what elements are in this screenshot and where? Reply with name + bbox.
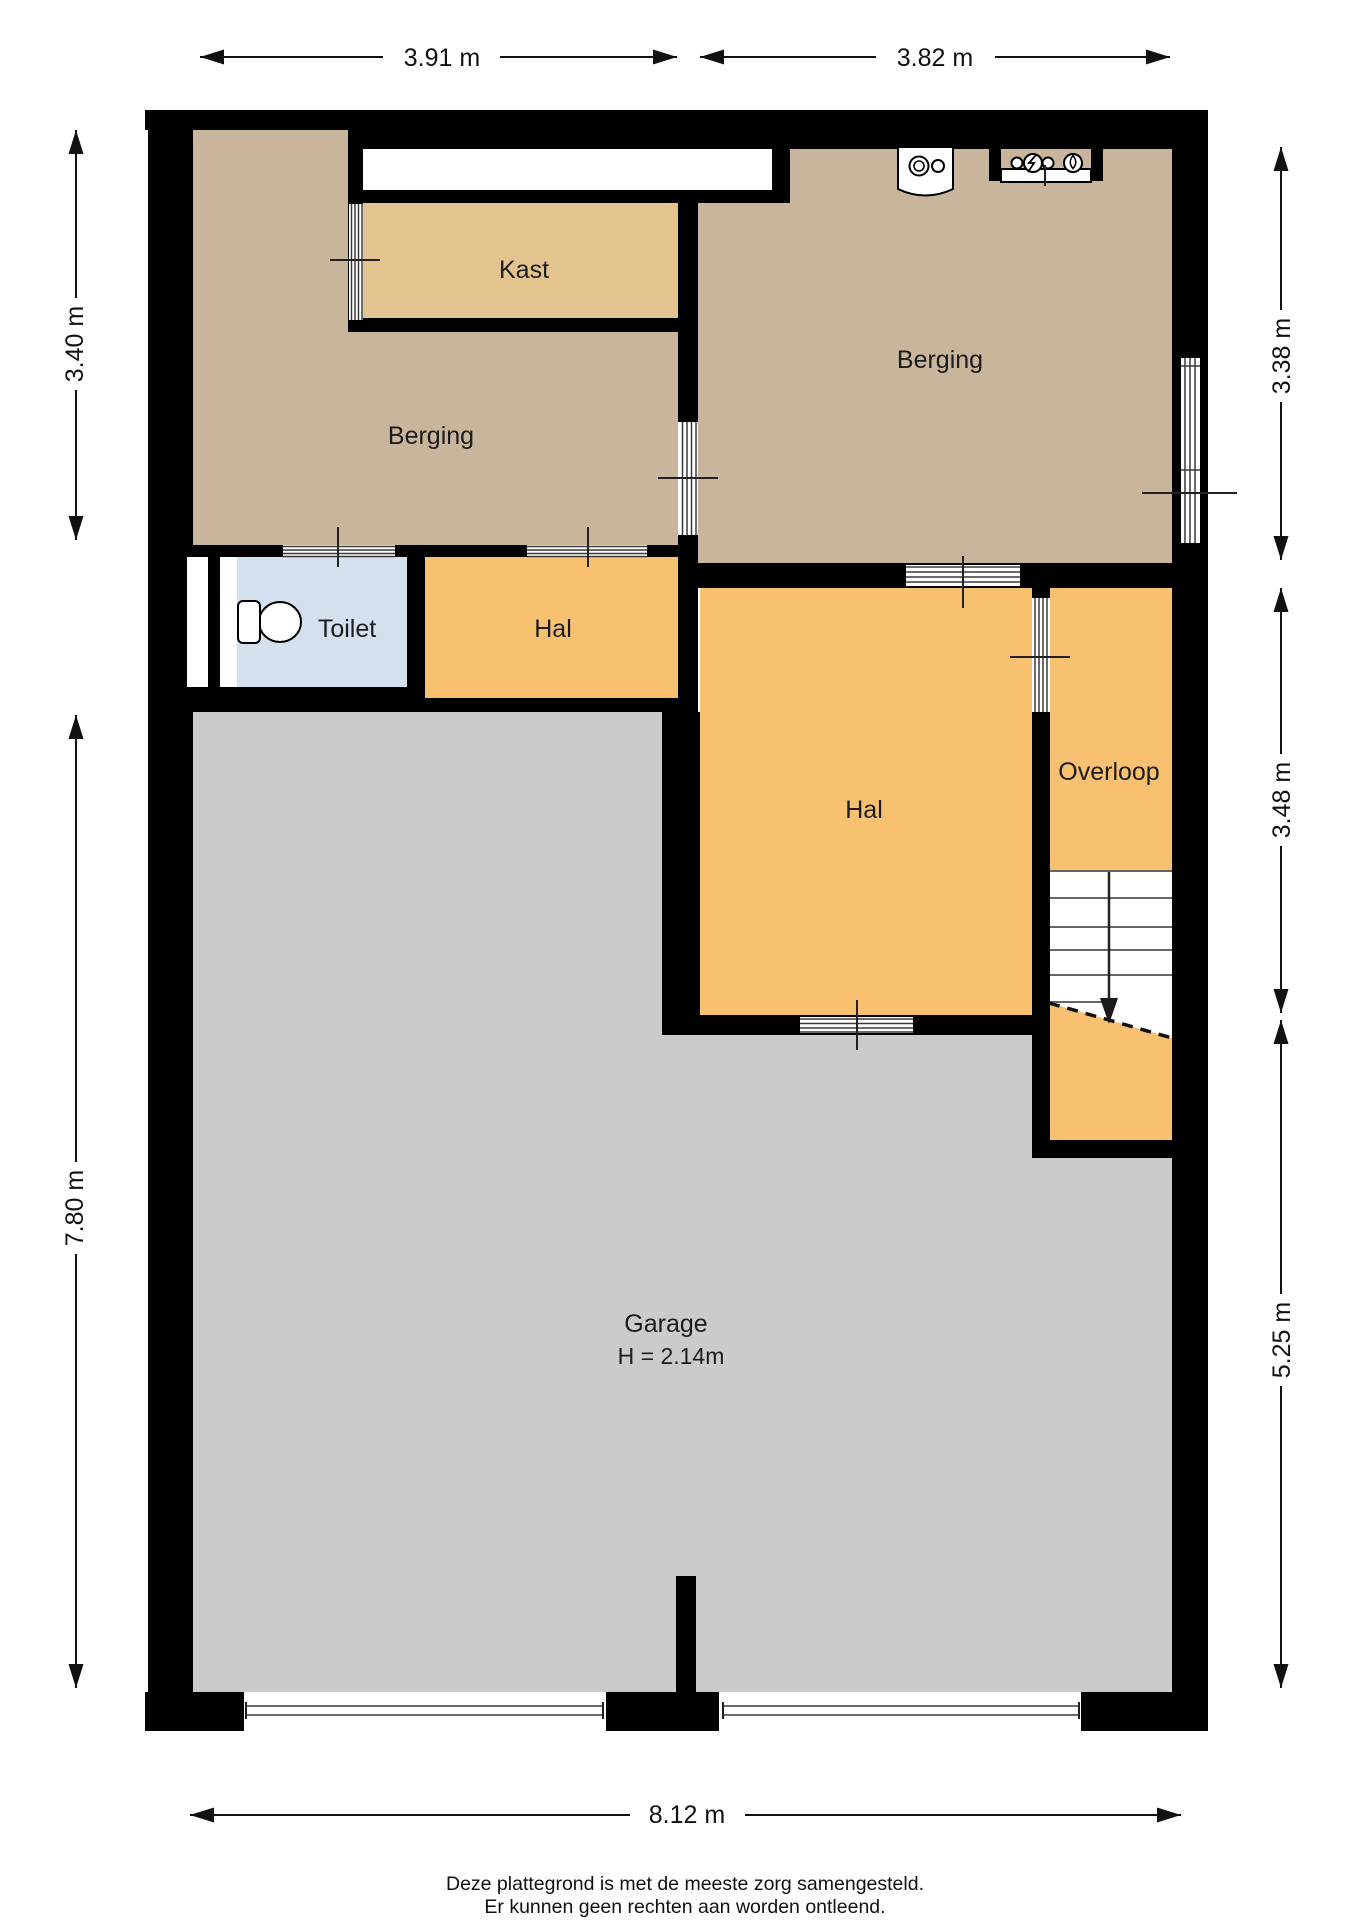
room-label-kast: Kast — [499, 256, 549, 284]
wall-segment — [190, 545, 283, 557]
room-label-berging-left: Berging — [388, 422, 474, 450]
svg-text:5.25 m: 5.25 m — [1268, 1302, 1296, 1378]
wall-segment — [647, 545, 678, 557]
berging-right-floor — [698, 203, 1172, 563]
wall-segment — [1081, 1692, 1208, 1731]
floor-plan: Kast Berging Berging Toilet Hal Hal Over… — [0, 0, 1358, 1920]
wall-segment — [1032, 1140, 1172, 1158]
dimension-right-upper: 3.38 m — [1268, 147, 1296, 560]
svg-text:3.38 m: 3.38 m — [1268, 318, 1296, 394]
berging-right-floor — [790, 149, 1172, 205]
wall-segment — [606, 1692, 719, 1731]
dimension-bottom: 8.12 m — [190, 1801, 1181, 1829]
disclaimer-line-2: Er kunnen geen rechten aan worden ontlee… — [484, 1896, 885, 1918]
garage-pier — [676, 1576, 696, 1692]
wall-segment — [662, 712, 700, 1035]
room-label-toilet: Toilet — [318, 615, 376, 643]
wall-segment — [678, 190, 698, 422]
svg-text:3.82 m: 3.82 m — [897, 44, 973, 72]
wall-segment — [1172, 110, 1208, 1731]
room-label-berging-right: Berging — [897, 346, 983, 374]
wall-segment — [407, 557, 425, 687]
room-label-hal-large: Hal — [845, 796, 883, 824]
floor-plan-page: Kast Berging Berging Toilet Hal Hal Over… — [0, 0, 1358, 1920]
svg-text:3.48 m: 3.48 m — [1268, 762, 1296, 838]
overloop-floor — [1050, 588, 1172, 870]
dimension-top-left: 3.91 m — [200, 44, 677, 72]
svg-text:3.40 m: 3.40 m — [61, 306, 89, 382]
dimension-left-lower: 7.80 m — [61, 715, 89, 1688]
wall-segment — [148, 110, 193, 1731]
dimension-right-middle: 3.48 m — [1268, 588, 1296, 1013]
disclaimer-line-1: Deze plattegrond is met de meeste zorg s… — [446, 1873, 924, 1895]
wall-segment — [190, 687, 425, 712]
wall-opening — [187, 557, 208, 687]
room-height-garage: H = 2.14m — [618, 1343, 725, 1369]
dimension-right-lower: 5.25 m — [1268, 1020, 1296, 1688]
svg-text:3.91 m: 3.91 m — [404, 44, 480, 72]
wall-segment — [363, 190, 790, 203]
wall-segment — [407, 698, 680, 712]
room-label-hal-small: Hal — [534, 615, 572, 643]
room-label-garage: Garage — [624, 1310, 707, 1338]
wall-segment — [772, 147, 790, 203]
svg-text:7.80 m: 7.80 m — [61, 1170, 89, 1246]
dimension-left-upper: 3.40 m — [61, 130, 89, 540]
svg-text:8.12 m: 8.12 m — [649, 1801, 725, 1829]
room-label-overloop: Overloop — [1058, 758, 1159, 786]
wall-segment — [145, 1692, 244, 1731]
wall-segment — [348, 110, 1208, 149]
wall-segment — [348, 318, 678, 332]
window-symbol — [245, 1702, 604, 1719]
niche — [363, 149, 772, 190]
disclaimer: Deze plattegrond is met de meeste zorg s… — [446, 1873, 924, 1918]
wall-segment — [395, 545, 527, 557]
toilet-icon — [238, 601, 301, 643]
dimension-top-right: 3.82 m — [700, 44, 1170, 72]
window-symbol — [722, 1702, 1080, 1719]
boiler-icon — [898, 147, 953, 196]
wall-opening — [220, 557, 237, 687]
